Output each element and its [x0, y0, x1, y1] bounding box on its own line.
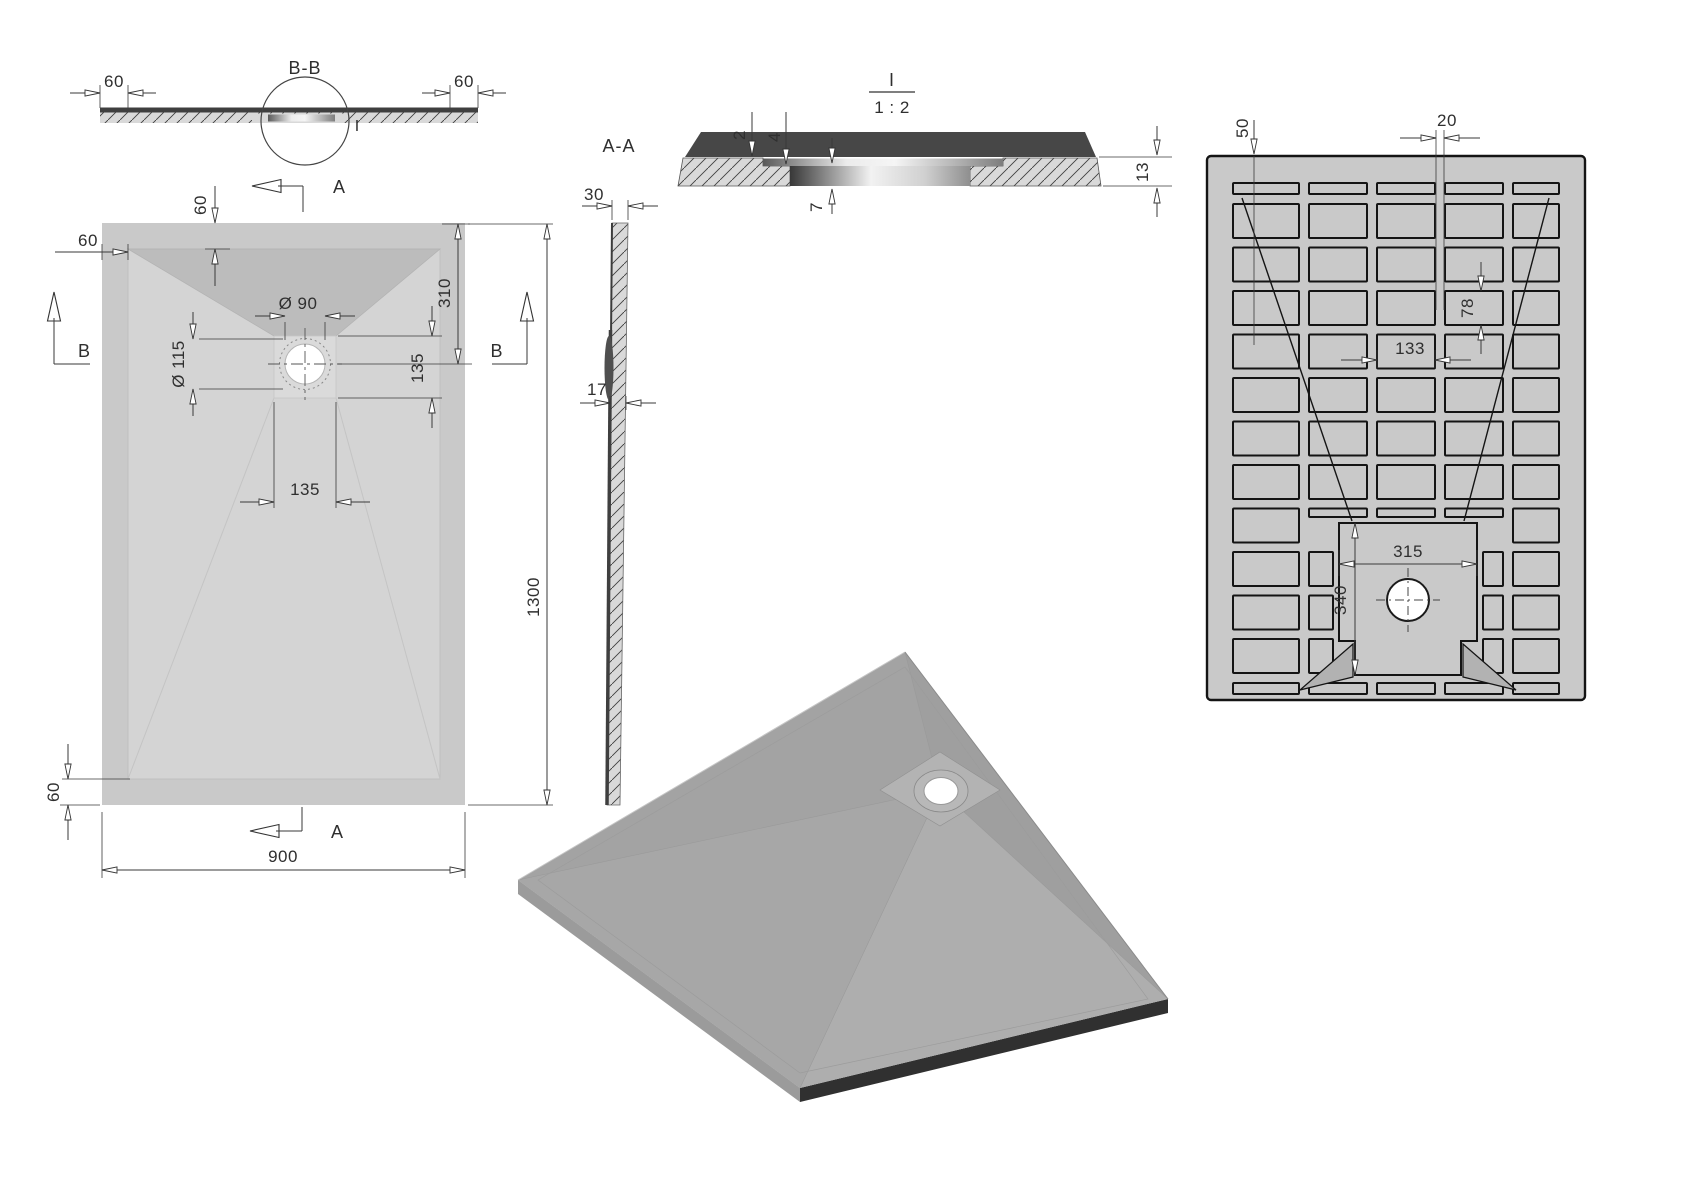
cad-drawing-canvas: B-B I 60 60 A — [0, 0, 1697, 1200]
plan-dim-border-left: 60 — [78, 231, 98, 250]
plan-dim-length: 1300 — [524, 577, 543, 617]
detail-drain-body — [790, 166, 970, 186]
detail-dim-depth: 7 — [807, 202, 826, 212]
section-aa-view: A-A 30 17 — [580, 136, 658, 805]
bottom-dim-center-h: 340 — [1331, 585, 1350, 615]
bb-drain-cover — [268, 115, 335, 122]
detail-mark-label: I — [355, 118, 359, 135]
iso-drain-hole — [924, 778, 958, 805]
cut-marker-a-bottom: A — [250, 807, 344, 842]
bb-dim-right: 60 — [454, 72, 474, 91]
plan-dim-drain-inner: Ø 115 — [169, 340, 188, 388]
detail-scale: 1 : 2 — [874, 98, 910, 117]
section-bb-view: B-B I 60 60 — [70, 58, 506, 165]
plan-view: A A B B 60 60 — [44, 177, 553, 878]
aa-dim-center: 17 — [587, 380, 607, 399]
plan-dim-drain-top: 310 — [435, 278, 454, 308]
plan-dim-drain-side: 135 — [408, 353, 427, 383]
bottom-dim-rib: 20 — [1437, 111, 1457, 130]
plan-dim-width: 900 — [268, 847, 298, 866]
bottom-dim-edge: 50 — [1233, 118, 1252, 138]
cut-marker-b-right: B — [490, 292, 533, 364]
cut-a-top-label: A — [333, 177, 346, 197]
bottom-dim-pitch: 78 — [1458, 298, 1477, 318]
plan-dim-drain-below: 135 — [290, 480, 320, 499]
cut-b-left-label: B — [78, 341, 91, 361]
section-bb-title: B-B — [288, 58, 321, 78]
detail-i-view: I 1 : 2 2 4 7 13 — [678, 70, 1172, 217]
cut-marker-a-top: A — [252, 177, 346, 212]
detail-dim-step: 4 — [765, 132, 784, 142]
bb-dim-left: 60 — [104, 72, 124, 91]
bottom-dim-pocket: 133 — [1395, 339, 1425, 358]
section-aa-title: A-A — [602, 136, 635, 156]
bb-top-surface — [100, 108, 478, 113]
detail-title: I — [889, 70, 895, 90]
cut-b-right-label: B — [490, 341, 503, 361]
detail-dim-lip: 2 — [730, 130, 749, 140]
cut-marker-b-left: B — [48, 292, 92, 364]
bottom-dim-center-w: 315 — [1393, 542, 1423, 561]
plan-dim-border-bottom: 60 — [44, 782, 63, 802]
detail-dim-thickness: 13 — [1133, 162, 1152, 182]
detail-drain-flange — [763, 159, 1003, 167]
bottom-view: 50 20 78 133 315 340 — [1207, 111, 1585, 700]
aa-dim-edge: 30 — [584, 185, 604, 204]
cut-a-bottom-label: A — [331, 822, 344, 842]
plan-dim-border-top: 60 — [191, 195, 210, 215]
plan-dim-drain-outer: Ø 90 — [279, 294, 318, 313]
